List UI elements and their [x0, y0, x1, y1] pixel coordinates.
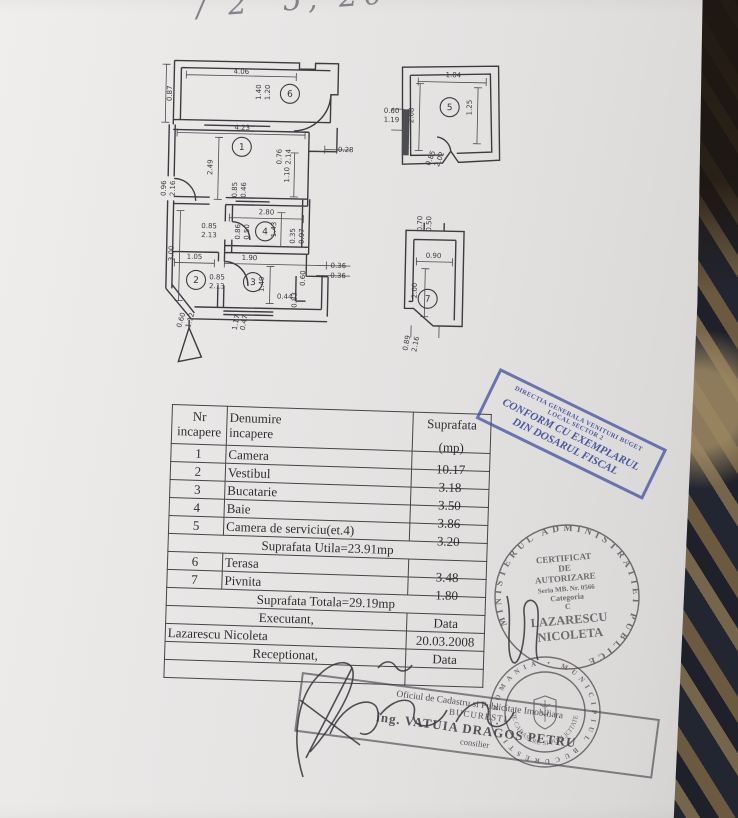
- dimension-label: 0.96: [160, 180, 168, 196]
- dimension-label: 0.83: [290, 292, 298, 308]
- dimension-label: 1.19: [384, 116, 400, 124]
- dimension-label: 1.40: [255, 84, 263, 100]
- dimension-label: 0.35: [289, 228, 297, 244]
- dimension-label: 0.85: [201, 222, 217, 230]
- dimension-label: 1.84: [445, 71, 461, 79]
- dimension-label: 0.97: [298, 228, 306, 244]
- dimension-label: 0.76: [275, 148, 283, 164]
- dimension-label: 0.60: [299, 270, 307, 286]
- dimension-label: 1.25: [466, 100, 474, 116]
- dimension-label: 2.80: [259, 208, 275, 216]
- dimension-label: 2.08: [407, 108, 415, 124]
- dimension-label: 0.85: [209, 273, 225, 281]
- room-number: 6: [287, 90, 293, 100]
- header-denumire: Denumireincapere: [226, 406, 413, 451]
- dimension-label: 2.14: [284, 148, 292, 164]
- dimension-label: 1.10: [283, 167, 291, 183]
- dimension-label: 1.05: [187, 253, 203, 261]
- dimension-label: 0.47: [239, 314, 250, 331]
- room-number: 5: [447, 103, 453, 113]
- dimension-label: 0.46: [240, 181, 248, 197]
- dimension-label: 4.06: [234, 68, 250, 76]
- dimension-label: 0.87: [166, 85, 174, 101]
- dimension-label: 0.36: [330, 272, 346, 280]
- room-number: 7: [425, 295, 431, 305]
- dimension-label: 2.13: [201, 231, 217, 239]
- area-table: Nrincapere Denumireincapere Suprafata(mp…: [163, 404, 490, 688]
- room-number: 2: [193, 276, 199, 286]
- dimension-label: 1.20: [264, 84, 272, 100]
- dimension-label: 0.28: [338, 146, 354, 154]
- dimension-label: 0.60: [384, 107, 400, 115]
- dimension-label: 0.36: [330, 262, 346, 270]
- dimension-label: 2.13: [209, 282, 225, 290]
- dimension-label: 0.50: [243, 224, 251, 240]
- room-number: 1: [239, 143, 245, 153]
- dimension-labels: 4.060.871.401.200.762.144.232.490.281.10…: [157, 65, 475, 353]
- dimension-label: 0.86: [234, 223, 242, 239]
- room-number: 3: [250, 278, 256, 288]
- dimension-label: 3.00: [167, 246, 175, 262]
- stamp-center-line: C: [565, 602, 572, 611]
- header-nr: Nrincapere: [171, 405, 227, 446]
- dimension-label: 0.70: [416, 216, 424, 232]
- dimension-label: 2.16: [410, 335, 421, 352]
- dimension-label: 2.00: [411, 283, 419, 299]
- room-number: 4: [262, 227, 268, 237]
- dimension-label: 0.50: [425, 216, 433, 232]
- paper-sheet: / 2' 5, 20 4.060.871.401.200.762.144.232…: [0, 0, 738, 818]
- dimension-label: 0.90: [426, 252, 442, 260]
- photo-background: / 2' 5, 20 4.060.871.401.200.762.144.232…: [0, 0, 738, 818]
- dimension-label: 2.49: [206, 159, 214, 175]
- dimension-label: 0.85: [231, 182, 239, 198]
- dimension-label: 4.23: [234, 124, 250, 132]
- dimension-label: 1.90: [242, 254, 258, 262]
- dimension-label: 2.16: [169, 180, 177, 196]
